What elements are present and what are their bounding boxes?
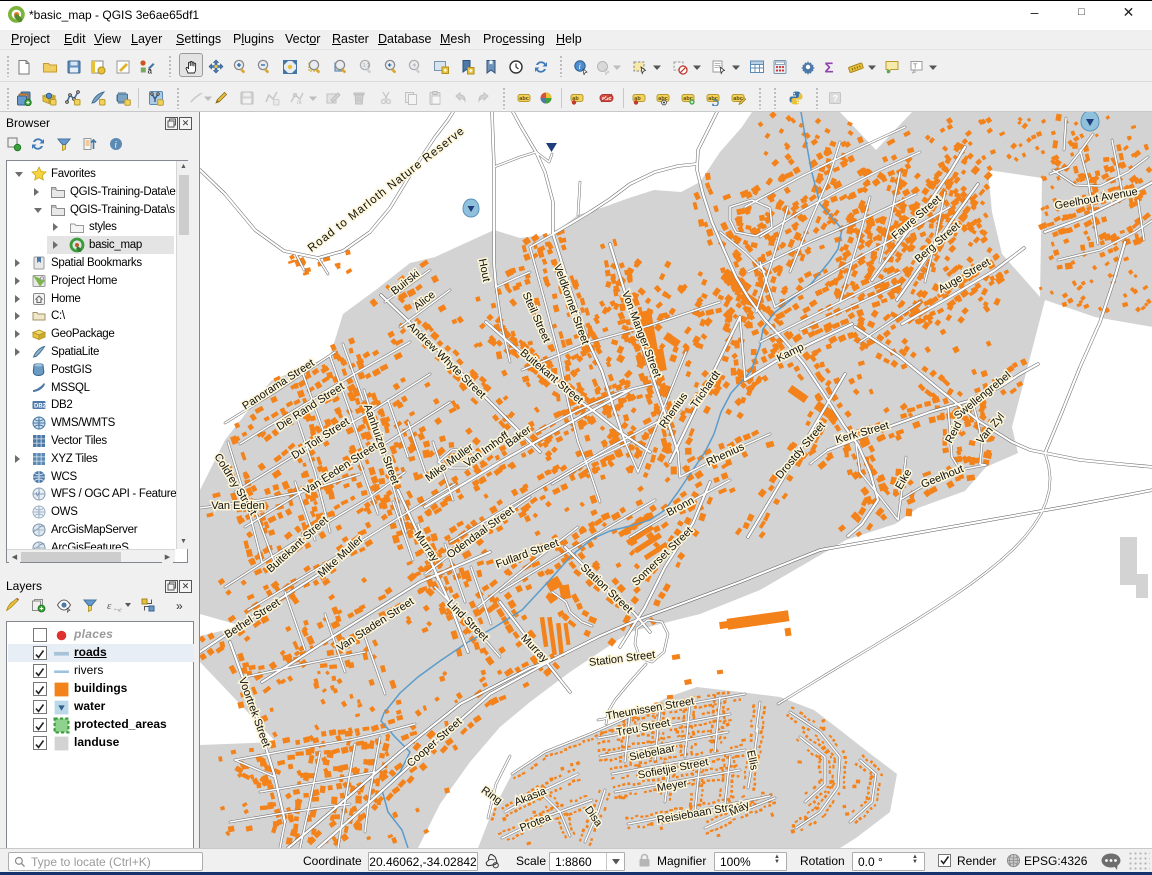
svg-text:Σ: Σ <box>825 60 834 76</box>
svg-text:/x: /x <box>297 100 302 106</box>
svg-text:?: ? <box>833 94 839 104</box>
svg-text:1:1: 1:1 <box>363 63 370 69</box>
svg-text:abc: abc <box>708 96 717 102</box>
svg-text:abc: abc <box>519 96 528 102</box>
svg-text:Van Eeden: Van Eeden <box>211 500 265 512</box>
svg-text:i: i <box>579 62 581 71</box>
svg-text:abc: abc <box>602 96 611 102</box>
svg-text:ε: ε <box>107 600 112 612</box>
svg-text:DB2: DB2 <box>34 404 47 410</box>
svg-text:a: a <box>148 67 153 76</box>
svg-text:T: T <box>913 64 918 71</box>
